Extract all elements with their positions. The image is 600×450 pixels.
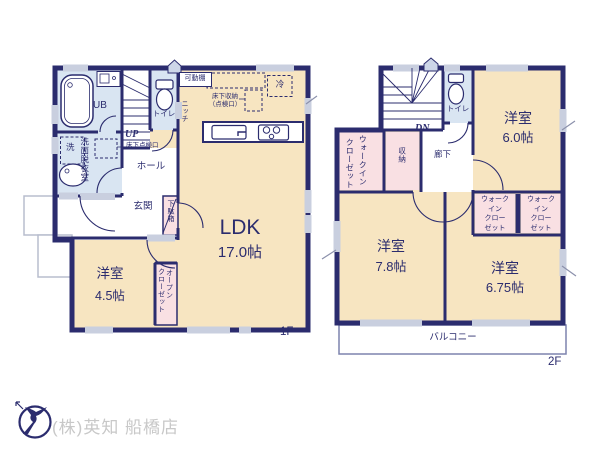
room675-label: 洋室: [481, 260, 529, 276]
wic2-line1: ウォーク: [521, 195, 561, 205]
balcony-label: バルコニー: [420, 333, 486, 344]
toilet-icon-2f: [449, 74, 464, 104]
fridge-label: 冷: [268, 80, 292, 90]
entrance-label: 玄関: [124, 202, 162, 213]
porch-upper: [24, 196, 57, 235]
ldk-label: LDK: [210, 216, 270, 240]
room78-label: 洋室: [368, 238, 414, 254]
open-closet-label-col1: オープン: [165, 269, 173, 299]
floor1-tag: 1F: [280, 326, 293, 339]
bedroom45-size-label: 4.5帖: [88, 289, 132, 303]
underfloor-storage-label-2: （点検口）: [206, 101, 244, 108]
ub-label: UB: [88, 100, 112, 112]
room78-size-label: 7.8帖: [368, 260, 414, 275]
room675-size-label: 6.75帖: [481, 281, 529, 296]
shoe-box-label: 下駄箱: [166, 200, 174, 223]
company-logo-icon: [16, 402, 51, 438]
ub-counter-icon: [97, 72, 120, 87]
stairs-dn-arrow-icon: [424, 58, 438, 71]
underfloor-storage-label-1: 床下収納: [206, 93, 244, 100]
wic2-line4: ゼット: [521, 224, 561, 234]
movable-shelf-label: 可動棚: [179, 72, 212, 87]
wic1-line3: クロー: [475, 214, 515, 224]
floor2-tag: 2F: [548, 356, 561, 369]
niche-label: ニッチ: [180, 100, 188, 123]
open-closet-label-col2: クローゼット: [157, 268, 165, 313]
ldk-size-label: 17.0帖: [210, 244, 270, 261]
washroom-label: 洗面脱衣室: [79, 137, 89, 182]
toilet-1f-label: トイレ: [150, 110, 178, 119]
wic2-line3: クロー: [521, 214, 561, 224]
wic1-line1: ウォーク: [475, 195, 515, 205]
wic1-label: ウォーク イン クロー ゼット: [475, 195, 515, 233]
wic-left-label-col2: クローゼット: [345, 138, 354, 189]
wic-left-label-col1: ウォークイン: [358, 135, 367, 186]
stairs-up-label: UP: [125, 129, 138, 141]
underfloor-access-label: 床下点検口: [126, 142, 159, 149]
company-name: (株)英知 船橋店: [52, 413, 179, 438]
toilet-icon-1f: [156, 80, 173, 110]
room6-size-label: 6.0帖: [496, 131, 540, 146]
stairs-dn-label: DN: [415, 123, 429, 135]
storage-label: 収納: [397, 147, 406, 163]
floorplan-page: UB トイレ 可動棚 冷 床下収納 （点検口） ニッチ UP 床下点検口 ホール…: [0, 0, 600, 450]
washer-label: 洗: [66, 143, 75, 153]
corridor-label: 廊下: [434, 150, 451, 160]
kitchen-icon: [203, 122, 303, 142]
wic2-label: ウォーク イン クロー ゼット: [521, 195, 561, 233]
room-hall: [122, 148, 178, 198]
wic1-line4: ゼット: [475, 224, 515, 234]
hall-label: ホール: [130, 162, 172, 173]
wic2-line2: イン: [521, 205, 561, 215]
toilet-2f-label: トイレ: [445, 105, 471, 114]
bedroom45-label: 洋室: [88, 266, 132, 282]
wic1-line2: イン: [475, 205, 515, 215]
room6-label: 洋室: [496, 110, 540, 126]
